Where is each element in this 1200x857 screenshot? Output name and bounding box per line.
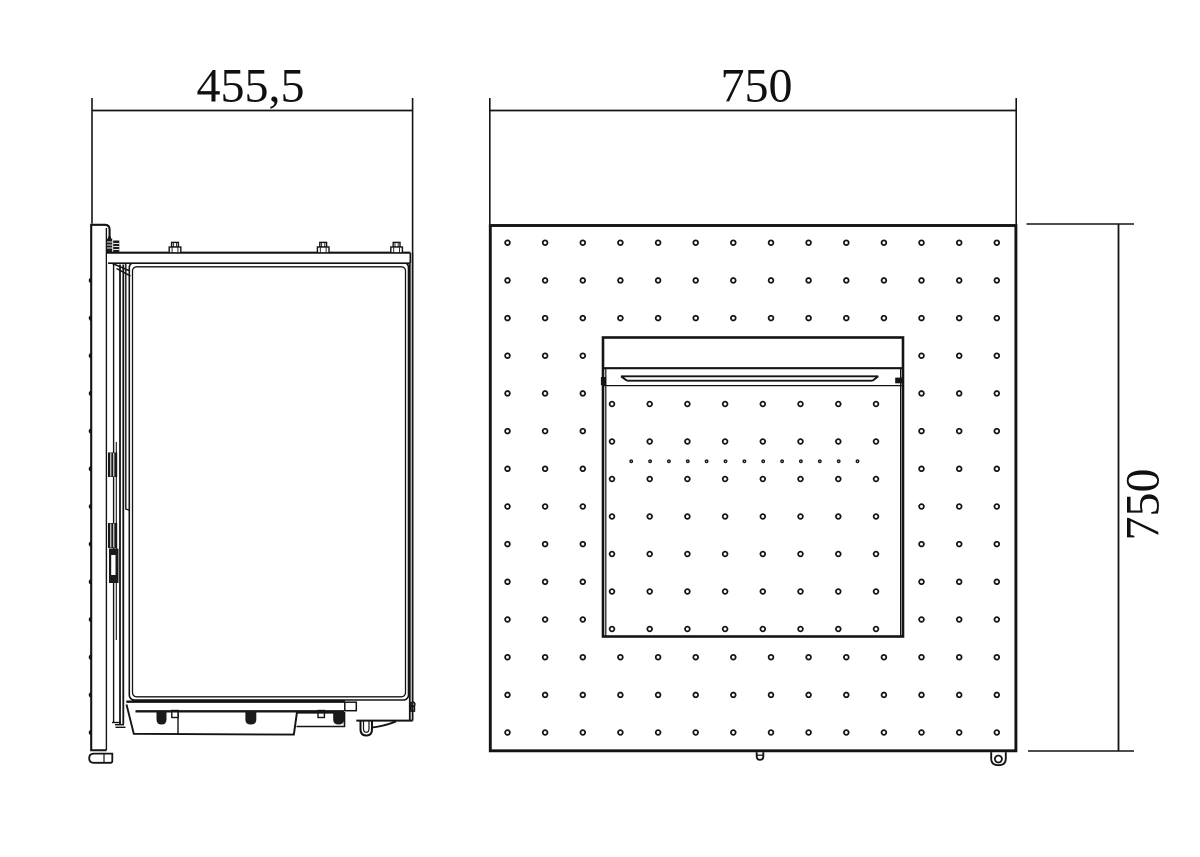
svg-text:750: 750 <box>721 60 793 113</box>
svg-text:750: 750 <box>1117 469 1170 541</box>
svg-text:455,5: 455,5 <box>197 60 305 113</box>
